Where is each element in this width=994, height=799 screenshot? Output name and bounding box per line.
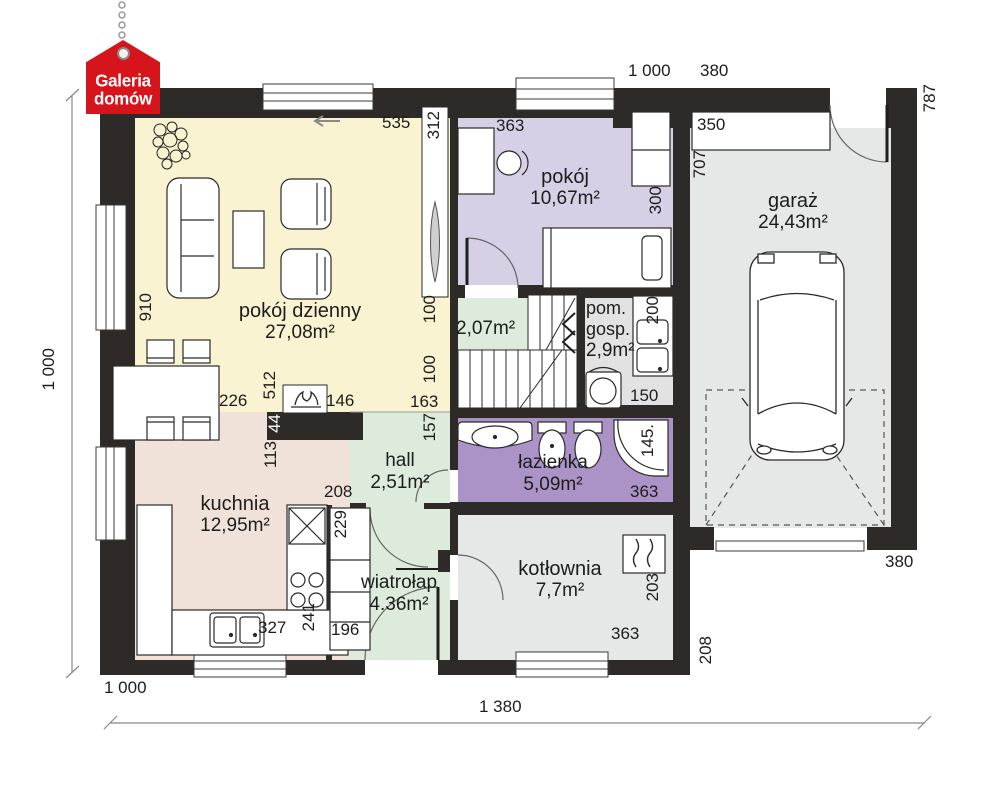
washing-machine: [586, 368, 621, 409]
fireplace-icon: [283, 385, 327, 413]
plant-icon: [153, 122, 190, 169]
dimension-label: 200: [644, 296, 661, 324]
dimension-label: 203: [644, 573, 661, 601]
room-area: 27,08m²: [200, 322, 400, 344]
stairs: [458, 295, 577, 408]
dimension-label: 535: [382, 114, 410, 131]
dimension-label: 208: [324, 483, 352, 500]
dimension-label: 208: [697, 636, 714, 664]
logo-grommet: [117, 47, 130, 60]
dimension-label: 1 380: [479, 698, 522, 715]
room-label-living: pokój dzienny 27,08m²: [200, 300, 400, 344]
door-arc-garage-entry: [830, 105, 887, 162]
room-name: pokój: [490, 166, 640, 188]
room-name: kotłownia: [492, 558, 628, 580]
dimension-label: 363: [630, 483, 658, 500]
room-name: pokój dzienny: [200, 300, 400, 322]
room-area: 12,95m²: [160, 515, 310, 537]
logo-text-line2: domów: [94, 90, 152, 109]
door-arc-hall-vestibule: [370, 509, 428, 567]
room-name: garaż: [718, 190, 868, 212]
dimension-label: 229: [332, 510, 349, 538]
dimension-label: 1 000: [40, 348, 57, 391]
dimension-label: 380: [700, 62, 728, 79]
window-top-living: [263, 84, 373, 110]
room-label-staircase: 2,07m²: [456, 318, 532, 340]
dimension-label: 150: [630, 387, 658, 404]
dimension-label: 146: [326, 392, 354, 409]
garage-gate-panel: [716, 541, 864, 551]
room-area: 2,9m²: [586, 340, 644, 361]
dimension-label: 44: [266, 414, 283, 433]
window-top-bedroom: [516, 78, 614, 110]
armchair: [281, 179, 331, 229]
coffee-table: [233, 211, 264, 268]
dimension-label: 157: [421, 413, 438, 441]
room-area: 4.36m²: [348, 594, 450, 616]
kitchen-sink: [210, 613, 264, 647]
dimension-label: 910: [137, 293, 154, 321]
dimension-label: 380: [885, 553, 913, 570]
window-left-living: [96, 205, 126, 330]
dimension-label: 145.: [639, 424, 656, 457]
bed: [543, 228, 671, 288]
room-area: 7,7m²: [492, 580, 628, 602]
room-label-boiler-room: kotłownia 7,7m²: [492, 558, 628, 602]
room-label-bathroom: łazienka 5,09m²: [488, 452, 618, 496]
dimension-label: 100: [421, 295, 438, 323]
boiler-icon: [623, 535, 665, 573]
room-name: hall: [350, 450, 450, 472]
room-label-hall: hall 2,51m²: [350, 450, 450, 494]
dimension-label: 163: [410, 393, 438, 410]
dimension-label: 1 000: [104, 679, 147, 696]
dimension-label: 512: [261, 371, 278, 399]
door-arc-bedroom: [467, 238, 518, 288]
dimension-label: 312: [425, 111, 442, 139]
dimension-label: 226: [219, 392, 247, 409]
dimension-label: 113: [262, 441, 279, 468]
entry-arrow-icon: [315, 116, 340, 126]
room-area: 2,51m²: [350, 472, 450, 494]
dimension-label: 300: [647, 186, 664, 214]
armchair: [281, 249, 331, 299]
dimension-label: 1 000: [628, 62, 671, 79]
room-label-kitchen: kuchnia 12,95m²: [160, 493, 310, 537]
dimension-label: 100: [421, 355, 438, 383]
room-label-garage: garaż 24,43m²: [718, 190, 868, 234]
window-bottom-kitchen: [194, 652, 286, 677]
window-bottom-boiler: [516, 652, 608, 677]
dimension-label: 787: [921, 84, 938, 112]
room-name: kuchnia: [160, 493, 310, 515]
room-area: 24,43m²: [718, 212, 868, 234]
room-area: 2,07m²: [456, 318, 532, 340]
room-name: wiatrołap: [348, 572, 450, 594]
dimension-label: 241: [300, 603, 317, 631]
dimension-label: 363: [611, 625, 639, 642]
floor-plan: pokój dzienny 27,08m² pokój 10,67m² gara…: [0, 0, 994, 799]
window-left-kitchen: [96, 447, 126, 540]
room-area: 10,67m²: [490, 188, 640, 210]
room-name: łazienka: [488, 452, 618, 474]
dimension-label: 327: [258, 619, 286, 636]
dimension-label: 196: [331, 621, 359, 638]
sofa: [167, 178, 219, 298]
desk: [458, 128, 494, 194]
dimension-label: 363: [496, 117, 524, 134]
car-icon: [742, 252, 852, 460]
room-label-vestibule: wiatrołap 4.36m²: [348, 572, 450, 616]
logo-chain: [117, 0, 127, 44]
washbasin: [458, 422, 532, 448]
dimension-label: 350: [697, 116, 725, 133]
room-area: 5,09m²: [488, 474, 618, 496]
room-name: pom. gosp.: [586, 298, 644, 340]
dimension-label: 707: [691, 150, 708, 178]
room-label-bedroom: pokój 10,67m²: [490, 166, 640, 210]
room-label-utility: pom. gosp. 2,9m²: [586, 298, 644, 361]
